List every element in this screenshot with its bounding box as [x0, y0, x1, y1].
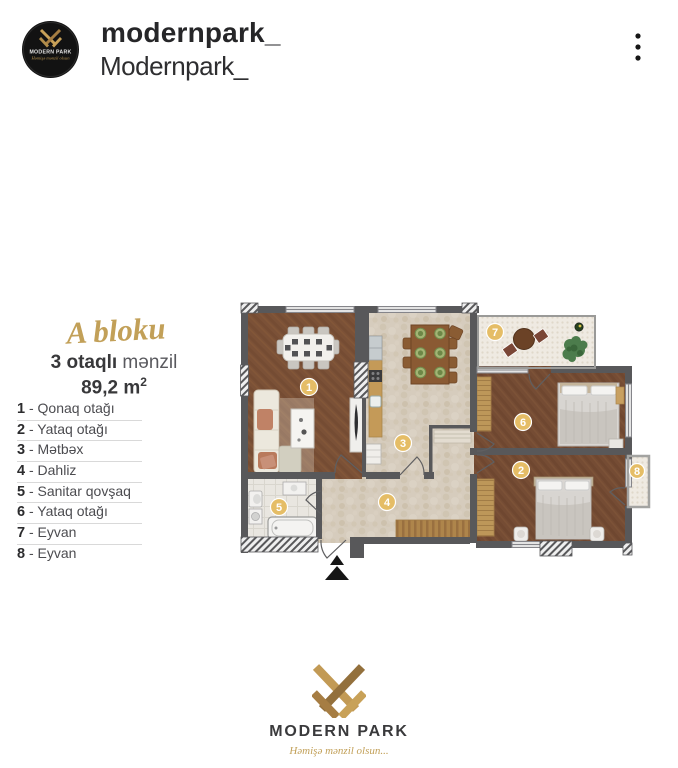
svg-text:Həmişə mənzil olsun: Həmişə mənzil olsun — [30, 56, 70, 61]
svg-text:4: 4 — [384, 497, 391, 509]
svg-text:3: 3 — [400, 438, 406, 450]
svg-text:7: 7 — [492, 327, 498, 339]
svg-text:2: 2 — [518, 465, 524, 477]
svg-text:1: 1 — [306, 382, 312, 394]
svg-text:8: 8 — [634, 466, 640, 478]
svg-text:6: 6 — [520, 417, 526, 429]
svg-text:5: 5 — [276, 502, 282, 514]
